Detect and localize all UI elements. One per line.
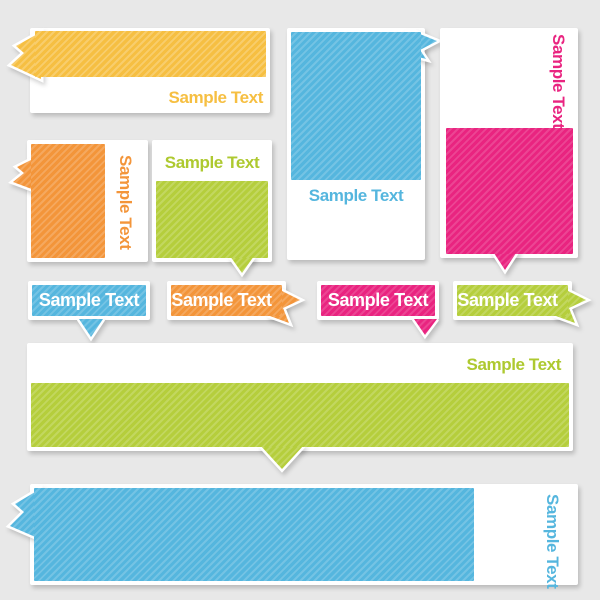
arrow-banner-green: Sample Text [453, 281, 572, 320]
ribbon-fill [156, 181, 268, 258]
pointer-down [228, 256, 256, 277]
banner-label-vertical: Sample Text [548, 34, 568, 129]
arrow-banner-orange: Sample Text [167, 281, 286, 320]
banner-wide-green: Sample Text [27, 343, 573, 451]
banner-label: Sample Text [167, 281, 276, 320]
banner-set-canvas: Sample Text Sample Text Sample Text Samp… [0, 0, 600, 600]
banner-card-pink-tall: Sample Text [440, 28, 578, 258]
speech-bubble-blue: Sample Text [28, 281, 150, 320]
banner-label: Sample Text [152, 153, 272, 173]
banner-label: Sample Text [453, 281, 562, 320]
pointer-down [257, 445, 307, 473]
banner-card-blue-tall: Sample Text [287, 28, 425, 260]
ribbon-fill [34, 488, 474, 581]
banner-label-vertical: Sample Text [542, 494, 562, 589]
ribbon-fill [31, 144, 105, 258]
banner-card-green-pointer: Sample Text [152, 140, 272, 262]
speech-bubble-pink: Sample Text [317, 281, 439, 320]
ribbon-fill [446, 128, 573, 254]
banner-wide-blue: Sample Text [30, 484, 578, 585]
banner-label: Sample Text [169, 88, 264, 108]
ribbon-fill [291, 32, 421, 180]
banner-label: Sample Text [317, 281, 439, 320]
banner-card-orange-side: Sample Text [27, 140, 148, 262]
banner-label-vertical: Sample Text [115, 155, 135, 250]
bubble-tail [411, 319, 441, 339]
ribbon-fill [31, 383, 569, 447]
banner-label: Sample Text [28, 281, 150, 320]
bubble-tail [76, 319, 106, 341]
ribbon-fill [35, 31, 266, 77]
banner-label: Sample Text [287, 186, 425, 206]
banner-card-yellow: Sample Text [30, 28, 270, 113]
banner-label: Sample Text [467, 355, 562, 375]
